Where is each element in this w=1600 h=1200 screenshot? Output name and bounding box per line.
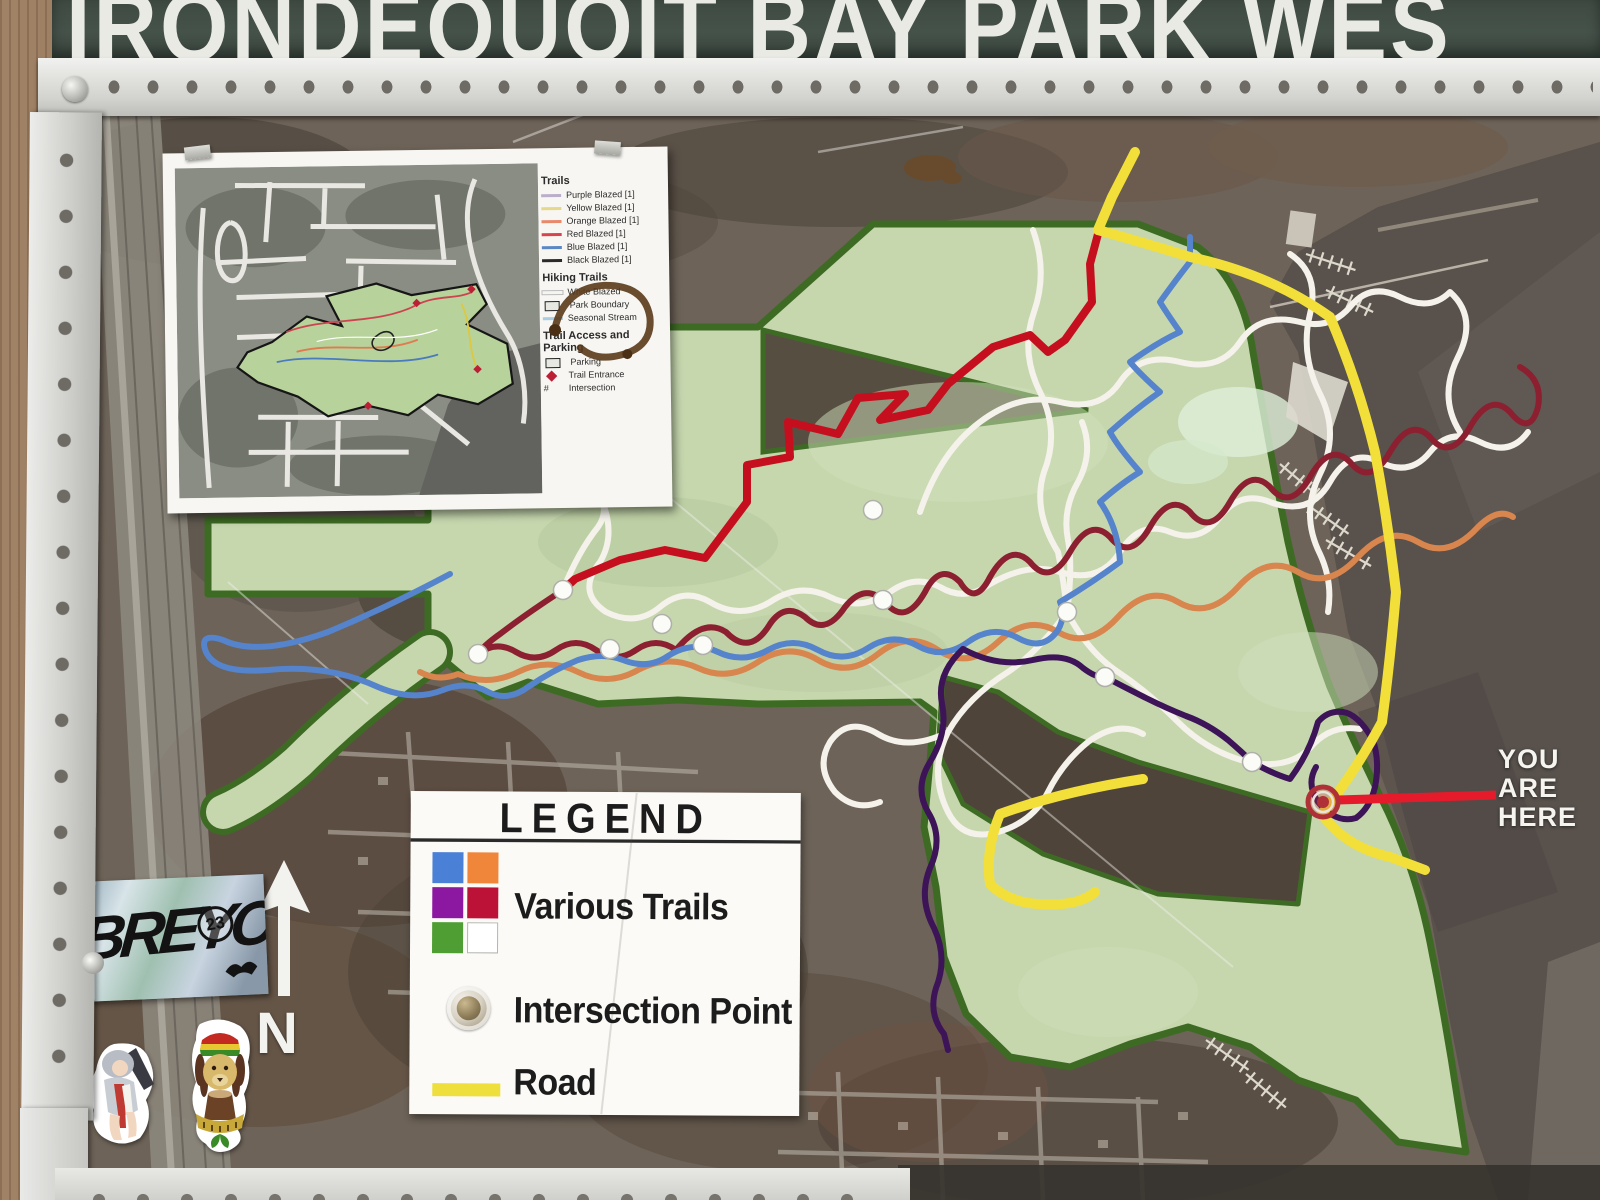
you-are-here-label: YOU ARE HERE — [1498, 745, 1577, 832]
intersection-hash-icon: # — [544, 382, 564, 395]
trail-swatch — [542, 233, 562, 236]
inset-paper-clip — [184, 145, 211, 161]
banner-title: IRONDEQUOIT BAY PARK WES — [66, 0, 1452, 58]
rivet-holes — [98, 75, 1593, 99]
inset-mini-map — [175, 163, 543, 498]
swatch-orange — [467, 852, 498, 883]
you-are-here-marker — [1308, 787, 1338, 817]
sign-banner: IRONDEQUOIT BAY PARK WES — [52, 0, 1600, 58]
photo-of-park-sign: { "banner": { "title": "IRONDEQUOIT BAY … — [0, 0, 1600, 1200]
legend-box: LEGEND Various Trails Intersection Point… — [409, 791, 801, 1116]
swatch-crimson — [467, 887, 498, 918]
rivet-holes — [85, 1186, 885, 1200]
trail-swatch — [542, 259, 562, 262]
you-are-here-pointer-line — [1338, 795, 1496, 800]
frame-bolt — [82, 952, 104, 974]
inset-legend-item: Black Blazed [1] — [542, 253, 664, 268]
various-trails-label: Various Trails — [514, 886, 728, 929]
road-swatch — [432, 1083, 500, 1096]
frame-screw — [62, 76, 88, 102]
sticker-rasta-lion — [186, 1018, 254, 1159]
intersection-point-icon — [447, 986, 491, 1030]
trail-swatch — [541, 194, 561, 197]
inset-map: Trails Purple Blazed [1] Yellow Blazed [… — [163, 146, 673, 513]
swatch-green — [432, 922, 463, 953]
swatch-blue — [432, 852, 463, 883]
rivet-holes — [45, 132, 79, 1102]
trail-swatch — [541, 207, 561, 210]
bottom-frame-strip — [55, 1168, 910, 1200]
swatch-purple — [432, 887, 463, 918]
inset-paper-clip — [594, 140, 621, 155]
intersection-point-label: Intersection Point — [514, 990, 792, 1034]
twig-debris — [534, 267, 666, 379]
inset-legend-item: #Intersection — [544, 381, 666, 396]
sticker-anime-girl — [84, 1040, 162, 1151]
bottom-shadow-band — [898, 1165, 1600, 1200]
sticker-graffiti: BREYO 23 — [77, 874, 268, 1002]
top-frame-strip — [38, 58, 1600, 116]
legend-title: LEGEND — [411, 791, 801, 844]
inset-legend-heading: Trails — [541, 174, 663, 188]
graffiti-bird-scribble — [221, 952, 262, 984]
north-label: N — [256, 1000, 298, 1067]
trail-swatch — [541, 220, 561, 223]
trail-swatch — [542, 246, 562, 249]
swatch-white — [467, 922, 498, 953]
road-label: Road — [513, 1062, 596, 1105]
trail-color-swatches — [432, 852, 503, 956]
